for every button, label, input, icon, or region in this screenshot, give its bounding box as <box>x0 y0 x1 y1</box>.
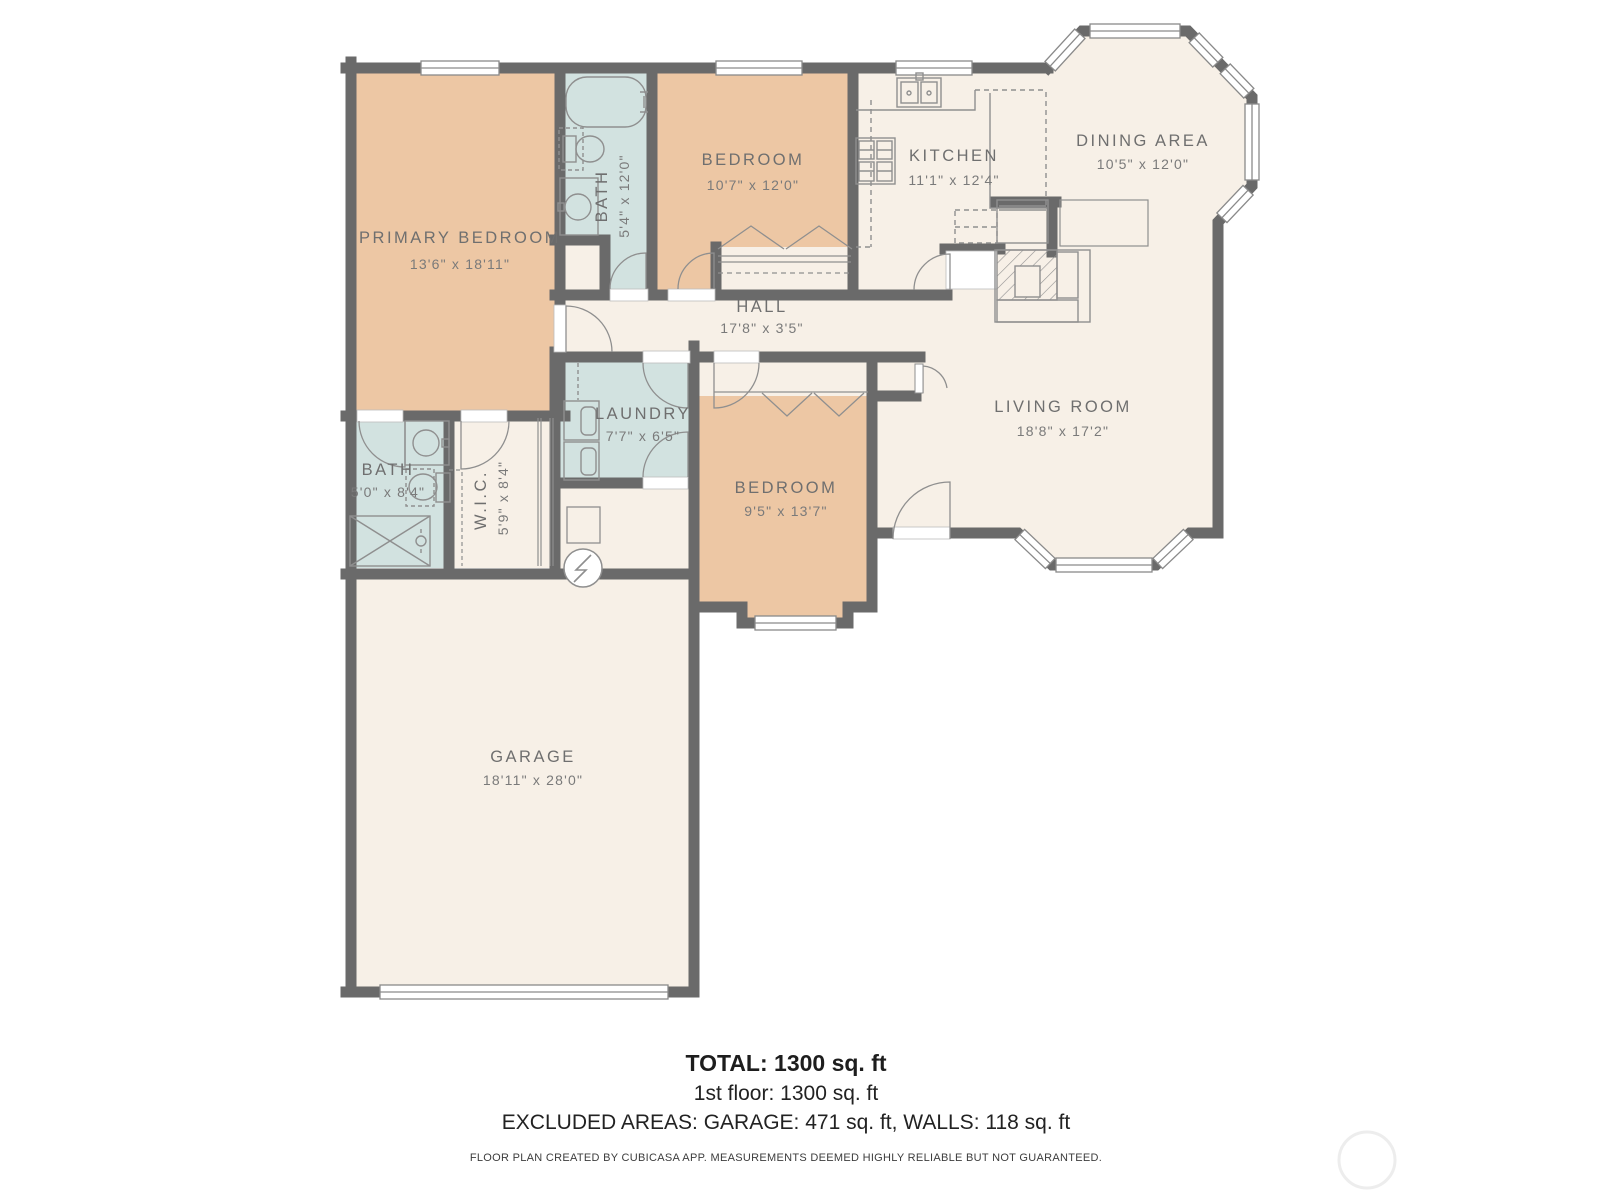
living-dims: 18'8" x 17'2" <box>1017 423 1109 439</box>
wic-label: W.I.C. <box>472 470 490 530</box>
laundry-dims: 7'7" x 6'5" <box>606 428 680 444</box>
hall-dims: 17'8" x 3'5" <box>720 320 803 336</box>
fireplace-firebox <box>1015 266 1040 297</box>
window-bedroom2 <box>755 616 836 630</box>
wic-door-opening <box>461 410 507 422</box>
garage-label: GARAGE <box>490 748 576 766</box>
bath1-door-opening <box>610 289 648 301</box>
dining-dims: 10'5" x 12'0" <box>1097 156 1189 172</box>
window-living-bay-center <box>1056 558 1152 572</box>
bedroom1-dims: 10'7" x 12'0" <box>707 177 799 193</box>
dining-label: DINING AREA <box>1076 132 1210 150</box>
bedroom2-dims: 9'5" x 13'7" <box>744 503 827 519</box>
bedroom1-label: BEDROOM <box>702 151 805 169</box>
bath2-label: BATH <box>362 461 415 479</box>
floor-plan-svg: PRIMARY BEDROOM 13'6" x 18'11" BATH 5'4"… <box>0 0 1600 1200</box>
laundry-label: LAUNDRY <box>595 405 691 423</box>
bedroom1-door-opening <box>668 289 715 301</box>
bath2-dims: 5'0" x 8'4" <box>351 484 425 500</box>
bath1-dims: 5'4" x 12'0" <box>616 154 632 237</box>
window-bay-top <box>1090 24 1180 38</box>
bedroom2-closet-floor <box>694 361 872 396</box>
kitchen-passage-opening <box>946 251 997 289</box>
primary-door-opening <box>554 305 566 352</box>
kitchen-dims: 11'1" x 12'4" <box>908 172 999 188</box>
living-closet-door-leaf <box>915 364 923 393</box>
window-kitchen <box>896 61 972 75</box>
living-label: LIVING ROOM <box>994 398 1132 416</box>
hall-label: HALL <box>736 298 787 316</box>
laundry-door-opening-top <box>643 351 690 363</box>
summary-block: TOTAL: 1300 sq. ft 1st floor: 1300 sq. f… <box>0 1052 1572 1164</box>
disclaimer-text: FLOOR PLAN CREATED BY CUBICASA APP. MEAS… <box>0 1152 1572 1164</box>
electrical-panel-icon <box>564 549 602 587</box>
bath2-door-opening <box>357 410 403 422</box>
kitchen-label: KITCHEN <box>909 147 999 165</box>
primary-bedroom-label: PRIMARY BEDROOM <box>359 229 561 247</box>
bedroom2-door-opening <box>714 351 759 363</box>
wic-dims: 5'9" x 8'4" <box>495 461 511 535</box>
laundry-door-opening-bottom <box>643 477 688 489</box>
bedroom1-closet-floor <box>716 247 853 293</box>
window-primary <box>421 61 499 75</box>
total-area-text: TOTAL: 1300 sq. ft <box>0 1052 1572 1075</box>
window-bedroom1 <box>716 61 802 75</box>
window-dining-right <box>1245 104 1259 180</box>
primary-bedroom-dims: 13'6" x 18'11" <box>410 256 510 272</box>
garage-dims: 18'11" x 28'0" <box>483 772 583 788</box>
floor-plan-page: PRIMARY BEDROOM 13'6" x 18'11" BATH 5'4"… <box>0 0 1600 1200</box>
garage-door <box>380 985 668 999</box>
bedroom2-label: BEDROOM <box>735 479 838 497</box>
bath1-label: BATH <box>593 170 611 223</box>
living-exterior-door-opening <box>893 527 950 539</box>
first-floor-area-text: 1st floor: 1300 sq. ft <box>0 1083 1572 1105</box>
excluded-areas-text: EXCLUDED AREAS: GARAGE: 471 sq. ft, WALL… <box>0 1112 1572 1134</box>
